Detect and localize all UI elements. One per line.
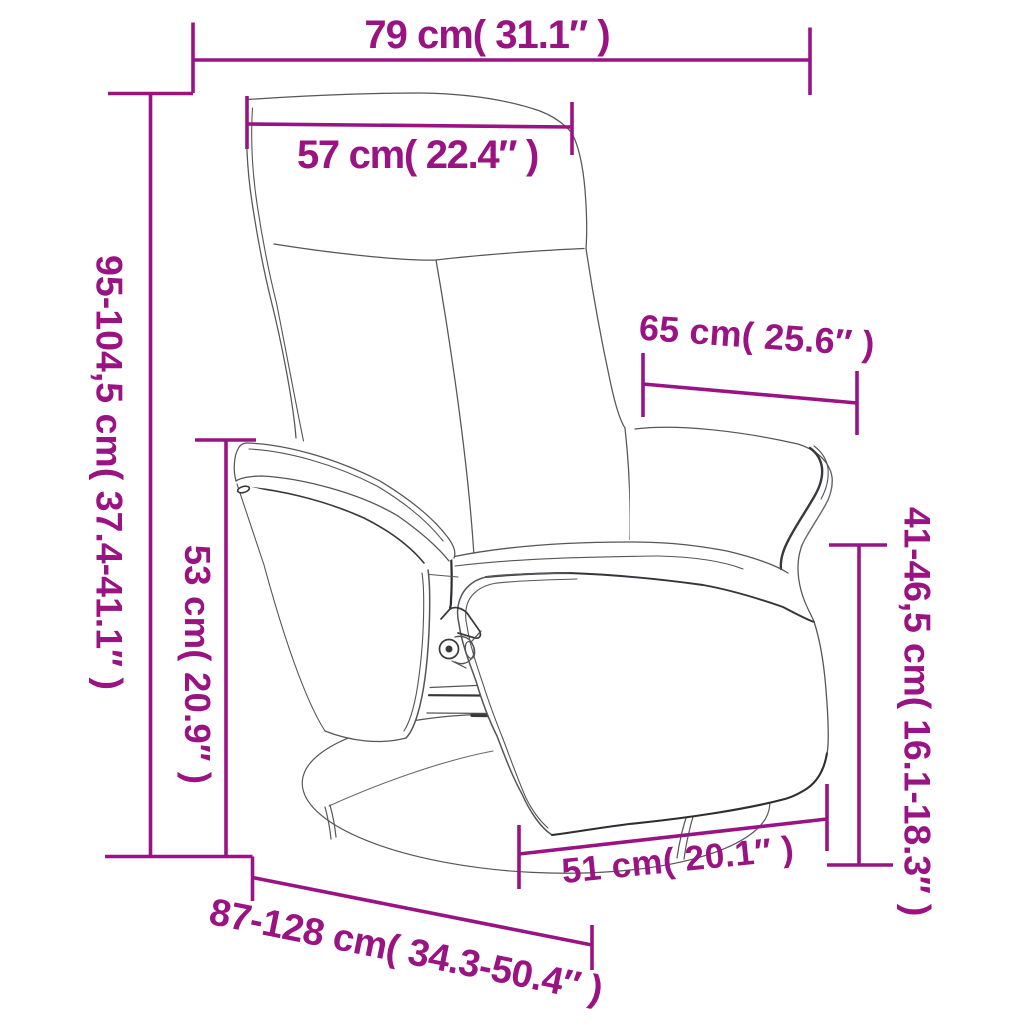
svg-text:95-104,5 cm( 37.4-41.1″ ): 95-104,5 cm( 37.4-41.1″ ) — [89, 255, 131, 690]
svg-text:53 cm( 20.9″ ): 53 cm( 20.9″ ) — [177, 545, 218, 784]
svg-text:57 cm( 22.4″ ): 57 cm( 22.4″ ) — [297, 133, 538, 177]
svg-text:79 cm( 31.1″ ): 79 cm( 31.1″ ) — [364, 13, 609, 57]
svg-text:41-46,5 cm( 16.1-18.3″ ): 41-46,5 cm( 16.1-18.3″ ) — [897, 507, 939, 916]
